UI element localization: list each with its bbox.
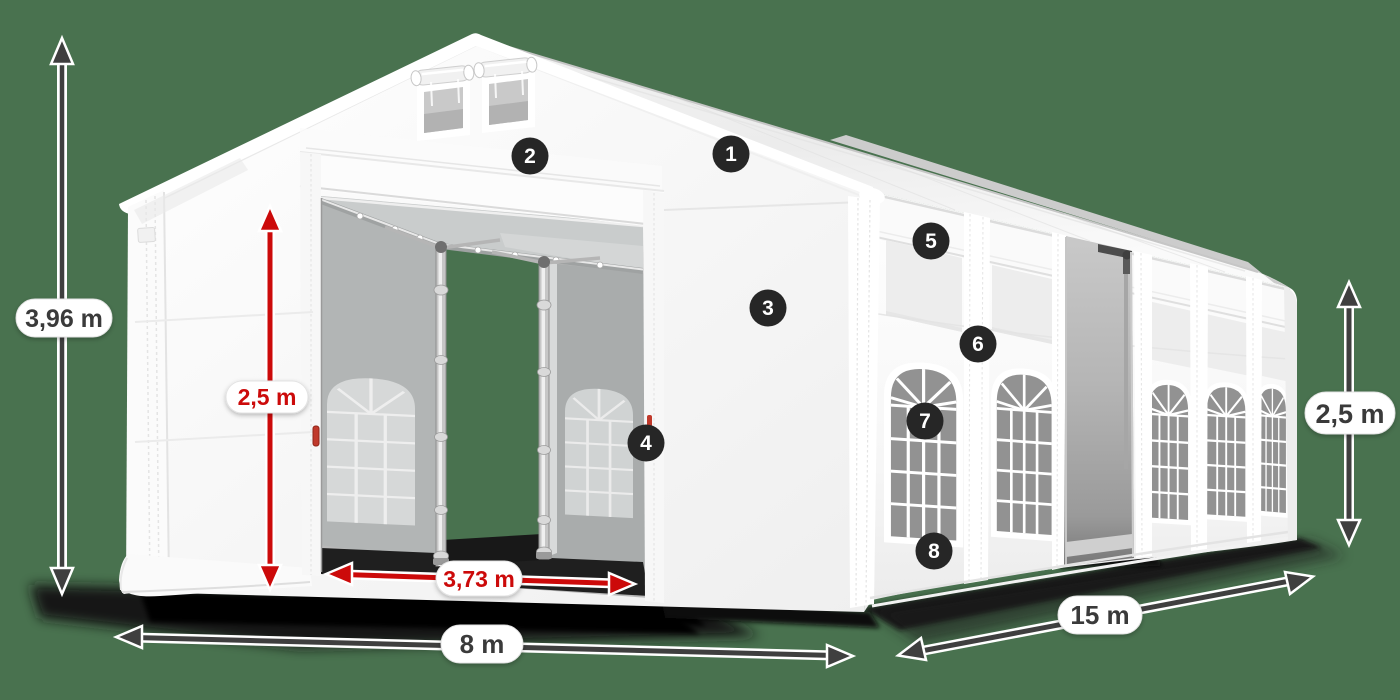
svg-text:5: 5 — [925, 230, 937, 253]
svg-text:7: 7 — [919, 410, 931, 433]
svg-text:3,96 m: 3,96 m — [25, 305, 103, 333]
svg-text:15 m: 15 m — [1070, 600, 1129, 630]
svg-text:2,5 m: 2,5 m — [1315, 399, 1384, 429]
svg-text:1: 1 — [725, 143, 737, 166]
svg-text:4: 4 — [640, 432, 652, 455]
svg-text:3: 3 — [762, 297, 774, 320]
svg-text:8 m: 8 m — [460, 629, 505, 659]
svg-text:6: 6 — [972, 333, 984, 356]
svg-text:2: 2 — [524, 145, 536, 168]
svg-text:2,5 m: 2,5 m — [238, 384, 297, 410]
svg-text:3,73 m: 3,73 m — [443, 566, 515, 592]
svg-text:8: 8 — [928, 540, 940, 563]
